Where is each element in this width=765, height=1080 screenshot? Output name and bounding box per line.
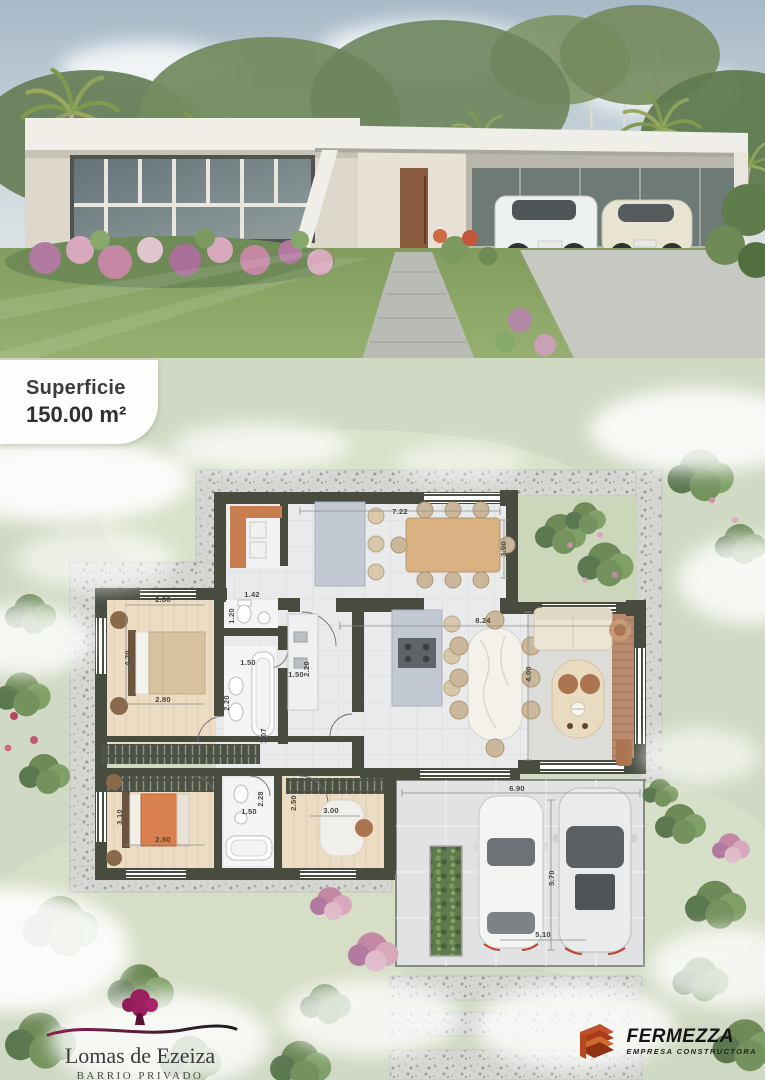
dimension-label: 1.42 [244, 590, 259, 599]
dimension-label: 1.50 [241, 807, 256, 816]
dimension-label: 8.24 [475, 616, 491, 625]
house-render [0, 0, 765, 360]
dimension-label: 3.10 [115, 809, 124, 824]
dimension-label: 2.20 [222, 695, 231, 710]
tree-icon [122, 989, 158, 1025]
flyer-page: 7.223.001.422.801.204.201.502.202.808.24… [0, 0, 765, 1080]
dimension-label: 1.07 [259, 728, 268, 743]
swoosh-line [48, 1026, 236, 1035]
building-icon [580, 1024, 614, 1059]
community-name: Lomas de Ezeiza [30, 1043, 250, 1069]
bedroom2-wardrobe [106, 776, 214, 792]
coffee-table [552, 660, 604, 738]
builder-tagline: EMPRESA CONSTRUCTORA [626, 1048, 757, 1056]
builder-logo-icon [574, 1018, 620, 1064]
dimension-label: 1.50 [240, 658, 255, 667]
dimension-label: 2.80 [155, 835, 170, 844]
floor-plan: 7.223.001.422.801.204.201.502.202.808.24… [0, 358, 765, 1080]
dimension-label: 4.00 [524, 666, 533, 681]
flyer-graphic: 7.223.001.422.801.204.201.502.202.808.24… [0, 0, 765, 1080]
community-tagline: BARRIO PRIVADO [30, 1070, 250, 1080]
dimension-label: 5.70 [547, 870, 556, 885]
dimension-label: 2.50 [289, 795, 298, 810]
dimension-label: 2.28 [256, 791, 265, 806]
dimension-label: 3.00 [499, 541, 508, 556]
dimension-label: 6.90 [509, 784, 524, 793]
area-badge-label: Superficie [26, 377, 158, 400]
garage [396, 780, 644, 966]
garden-patch [518, 496, 638, 602]
builder-name: FERMEZZA [626, 1027, 757, 1046]
master-wardrobe [102, 744, 260, 764]
dimension-label: 1.20 [227, 608, 236, 623]
area-badge: Superficie 150.00 m² [0, 360, 158, 444]
deck-lounger [616, 740, 632, 766]
front-door [400, 168, 428, 252]
dimension-label: 2.20 [302, 661, 311, 676]
community-logo: Lomas de Ezeiza BARRIO PRIVADO [30, 985, 250, 1080]
plan-car-1 [474, 796, 548, 950]
bedroom3-wardrobe [286, 778, 384, 794]
dimension-label: 2.80 [155, 595, 170, 604]
dimension-label: 7.22 [392, 507, 407, 516]
dimension-label: 4.20 [123, 650, 132, 665]
garage-planter [430, 846, 462, 956]
dimension-label: 2.80 [155, 695, 170, 704]
dimension-label: 5.10 [535, 930, 550, 939]
plan-car-2 [553, 788, 637, 954]
dimension-label: 3.00 [323, 806, 338, 815]
area-badge-value: 150.00 m² [26, 402, 158, 428]
parapet [25, 118, 360, 152]
community-logo-icon [30, 985, 250, 1041]
builder-logo: FERMEZZA EMPRESA CONSTRUCTORA [574, 1018, 757, 1064]
